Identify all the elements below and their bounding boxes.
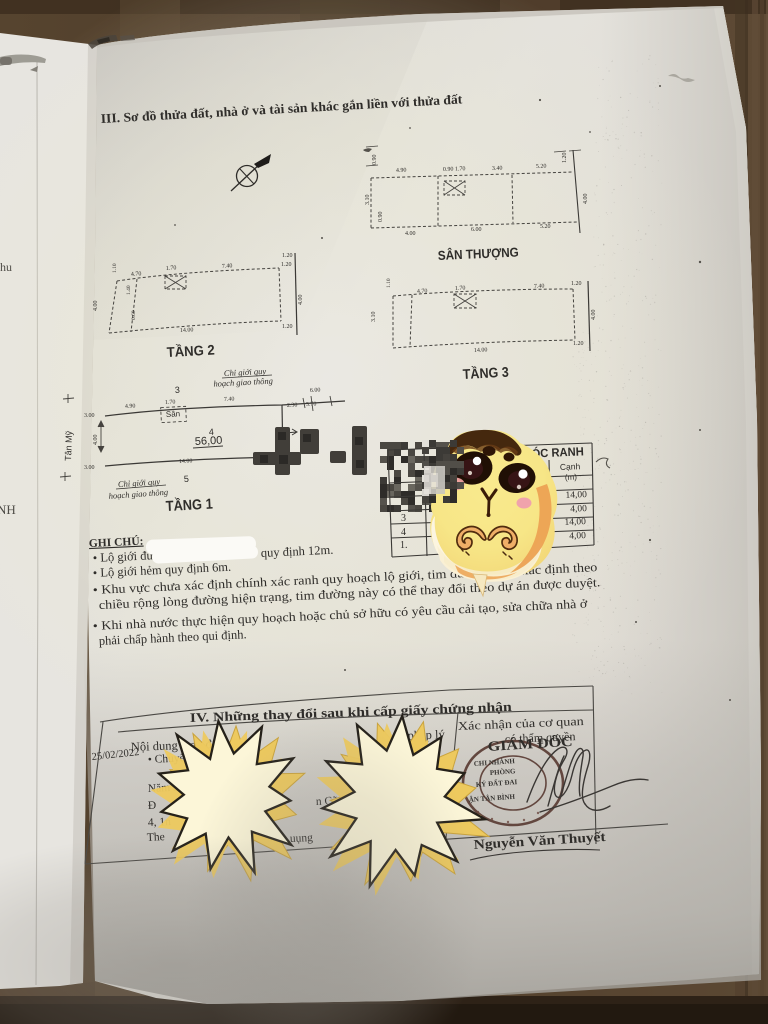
svg-text:0.90: 0.90 <box>378 212 384 223</box>
svg-text:Đ: Đ <box>148 800 157 812</box>
svg-text:4.00: 4.00 <box>405 231 416 237</box>
svg-text:3.00: 3.00 <box>84 465 95 471</box>
svg-text:2.30: 2.30 <box>287 402 298 409</box>
svg-text:0.90: 0.90 <box>372 155 378 166</box>
svg-text:Sân: Sân <box>166 409 181 419</box>
svg-text:3.70: 3.70 <box>306 401 317 408</box>
svg-text:3.00: 3.00 <box>84 413 95 419</box>
svg-text:1.20: 1.20 <box>573 341 584 347</box>
svg-text:3: 3 <box>401 513 406 524</box>
svg-text:14,00: 14,00 <box>565 490 587 501</box>
svg-text:4.00: 4.00 <box>591 310 597 321</box>
svg-text:1.20: 1.20 <box>571 281 582 287</box>
svg-text:0.60: 0.60 <box>131 310 137 320</box>
svg-text:4.90: 4.90 <box>125 403 136 410</box>
svg-text:1.: 1. <box>400 540 408 551</box>
svg-text:3: 3 <box>175 385 181 395</box>
svg-text:4.00: 4.00 <box>93 301 99 312</box>
svg-text:1.20: 1.20 <box>562 153 568 164</box>
svg-text:4,00: 4,00 <box>569 531 586 542</box>
svg-text:(m): (m) <box>565 472 578 482</box>
svg-text:14.00: 14.00 <box>474 347 488 354</box>
svg-text:1.40: 1.40 <box>126 285 132 295</box>
svg-text:4.70: 4.70 <box>131 271 142 278</box>
svg-text:7.40: 7.40 <box>534 283 545 290</box>
svg-text:4.00: 4.00 <box>298 295 304 306</box>
svg-text:6.00: 6.00 <box>310 387 321 394</box>
svg-text:7.40: 7.40 <box>224 396 235 403</box>
svg-text:3.40: 3.40 <box>492 166 503 172</box>
svg-text:5.20: 5.20 <box>540 224 551 230</box>
svg-text:4: 4 <box>401 527 406 538</box>
svg-text:4.90: 4.90 <box>396 168 407 174</box>
svg-text:Tân Mỹ: Tân Mỹ <box>63 430 74 461</box>
svg-text:4,00: 4,00 <box>570 504 587 515</box>
svg-text:1.20: 1.20 <box>282 324 293 330</box>
svg-text:0.90 1.70: 0.90 1.70 <box>443 166 466 173</box>
svg-text:4.00: 4.00 <box>583 194 589 205</box>
svg-text:6.00: 6.00 <box>471 227 482 233</box>
svg-text:4.70: 4.70 <box>417 288 428 295</box>
svg-text:Cạnh: Cạnh <box>560 461 581 472</box>
svg-text:3.10: 3.10 <box>371 312 377 323</box>
svg-text:14.00: 14.00 <box>180 327 194 334</box>
svg-text:1.70: 1.70 <box>165 399 176 406</box>
svg-text:14,00: 14,00 <box>564 517 586 528</box>
svg-text:1.20: 1.20 <box>282 253 293 259</box>
svg-text:4.00: 4.00 <box>93 435 99 446</box>
svg-text:1.10: 1.10 <box>112 263 118 273</box>
svg-text:1.10: 1.10 <box>386 278 392 288</box>
svg-text:1.70: 1.70 <box>455 285 466 292</box>
svg-text:3.10: 3.10 <box>365 195 371 206</box>
svg-text:TẦNG 1: TẦNG 1 <box>165 496 213 515</box>
svg-text:1.70: 1.70 <box>166 265 177 272</box>
svg-text:1.20: 1.20 <box>281 262 292 268</box>
svg-text:5.20: 5.20 <box>536 164 547 170</box>
svg-text:14.00: 14.00 <box>179 458 193 465</box>
svg-text:TẦNG 2: TẦNG 2 <box>166 341 215 360</box>
svg-text:7.40: 7.40 <box>222 263 233 270</box>
svg-text:TẦNG 3: TẦNG 3 <box>462 364 509 382</box>
svg-text:5: 5 <box>184 474 190 484</box>
